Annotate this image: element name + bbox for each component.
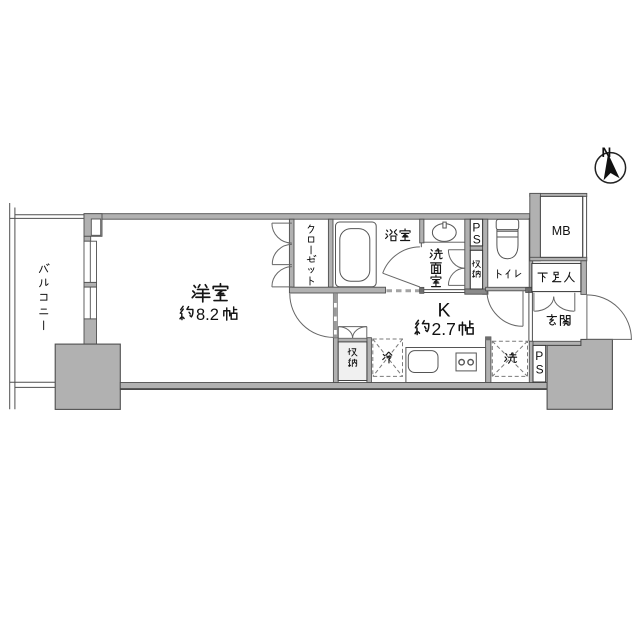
svg-text:S: S	[473, 233, 481, 247]
svg-text:P: P	[535, 349, 543, 363]
svg-text:8.2: 8.2	[196, 306, 219, 324]
svg-text:MB: MB	[552, 224, 571, 238]
svg-text:2.7: 2.7	[432, 319, 456, 339]
svg-text:N: N	[602, 145, 612, 160]
svg-text:S: S	[536, 362, 544, 376]
